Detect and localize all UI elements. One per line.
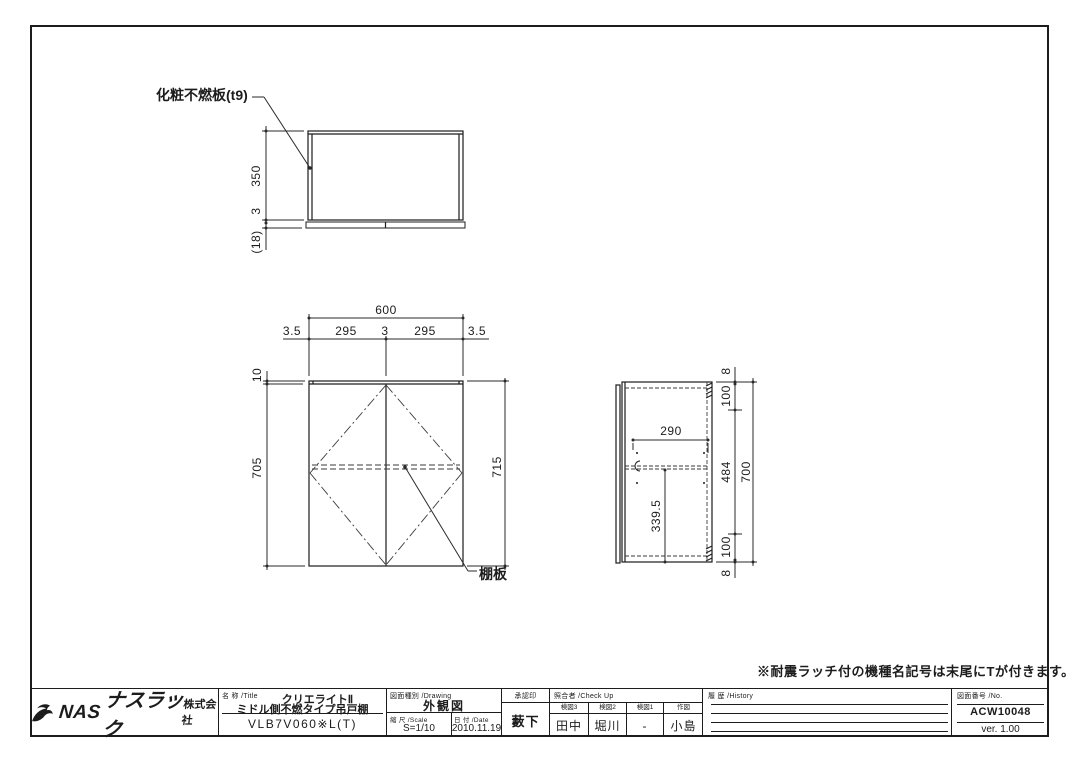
history-cell: 履 歴 /History	[702, 689, 951, 737]
approval-header: 承認印	[502, 691, 549, 701]
checkup-col-1-value: -	[627, 714, 663, 737]
product-name: ミドル側不燃タイプ吊戸棚	[219, 701, 386, 717]
name-cell: 名 称 /Title クリエライトⅡ ミドル側不燃タイプ吊戸棚 VLB7V060…	[218, 689, 386, 737]
model-number: VLB7V060※L(T)	[219, 717, 386, 731]
history-line-1	[711, 704, 948, 705]
name-divider	[222, 713, 383, 714]
logo-brand-text: ナスラック	[101, 684, 186, 742]
history-line-3	[711, 722, 948, 723]
front-view-drawing	[309, 381, 463, 566]
dim-side-bottom-offset: 100	[719, 536, 733, 558]
title-block: NAS ナスラック 株式会社 名 称 /Title クリエライトⅡ ミドル側不燃…	[30, 688, 1049, 737]
approval-cell: 承認印 藪下	[501, 689, 549, 737]
checkup-col-3-label: 検図3	[550, 702, 588, 714]
side-view-details	[635, 383, 712, 561]
history-line-2	[711, 713, 948, 714]
checkup-col-1-label: 検図1	[627, 702, 663, 714]
dim-front-door-left: 295	[335, 324, 357, 338]
checkup-cell: 照合者 /Check Up 検図3 田中 検図2 堀川 検図1 - 作図 小島	[549, 689, 702, 737]
checkup-header: 照合者 /Check Up	[554, 691, 614, 701]
dim-front-edge-left: 3.5	[283, 324, 301, 338]
dim-front-total-height: 715	[490, 456, 504, 478]
checkup-col-draft-value: 小島	[664, 714, 703, 737]
dim-front-top-band: 10	[250, 368, 264, 382]
drawing-cell: 図面種別 /Drawing 外観図 縮 尺 /Scale S=1/10 日 付 …	[386, 689, 501, 737]
checkup-col-2-value: 堀川	[589, 714, 626, 737]
number-cell: 図面番号 /No. ACW10048 ver. 1.00	[951, 689, 1049, 737]
approval-value: 藪下	[502, 711, 549, 730]
side-view-drawing	[616, 382, 712, 563]
dim-side-total-height: 700	[739, 461, 753, 483]
number-header: 図面番号 /No.	[957, 691, 1002, 701]
finish-panel-callout: 化粧不燃板(t9)	[156, 85, 248, 105]
logo-suffix-text: 株式会社	[181, 696, 220, 728]
drawing-number: ACW10048	[952, 706, 1049, 718]
checkup-col-2: 検図2 堀川	[588, 702, 626, 737]
top-view-drawing	[306, 131, 465, 228]
number-divider-2	[957, 722, 1044, 723]
nas-bird-logo-icon	[29, 703, 55, 723]
logo-cell: NAS ナスラック 株式会社	[30, 689, 218, 737]
dim-side-shelf-height: 339.5	[649, 500, 663, 533]
shelf-callout: 棚板	[479, 564, 507, 584]
checkup-col-draft-label: 作図	[664, 702, 703, 714]
checkup-col-1: 検図1 -	[626, 702, 663, 737]
seismic-latch-footnote: ※耐震ラッチ付の機種名記号は末尾にTが付きます。	[757, 661, 1075, 680]
checkup-col-2-label: 検図2	[589, 702, 626, 714]
history-line-4	[711, 731, 948, 732]
history-header: 履 歴 /History	[708, 691, 753, 701]
dim-side-top-offset: 100	[719, 385, 733, 407]
dim-front-door-right: 295	[414, 324, 436, 338]
dim-front-total-width: 600	[375, 303, 397, 317]
dim-front-edge-right: 3.5	[468, 324, 486, 338]
drawing-sheet: 化粧不燃板(t9) 350 3 (18) 600 3.5 295 3 295 3…	[0, 0, 1080, 764]
side-view-hidden-lines	[625, 382, 707, 562]
approval-divider	[502, 702, 549, 703]
checkup-col-draft: 作図 小島	[663, 702, 703, 737]
dim-side-mid-span: 484	[719, 461, 733, 483]
dim-top-view-door-thickness: (18)	[249, 230, 263, 253]
checkup-col-3-value: 田中	[550, 714, 588, 737]
checkup-col-3: 検図3 田中	[550, 702, 588, 737]
logo-nas-text: NAS	[58, 702, 102, 724]
drawing-version: ver. 1.00	[952, 724, 1049, 735]
front-view-shelf-leader	[403, 465, 477, 571]
dim-top-view-gap: 3	[249, 207, 263, 214]
number-divider-1	[957, 704, 1044, 705]
dim-top-view-depth: 350	[249, 165, 263, 187]
scale-value: S=1/10	[387, 723, 451, 734]
cad-line-geometry	[0, 0, 1080, 764]
dim-front-center-gap: 3	[381, 324, 388, 338]
checkup-columns: 検図3 田中 検図2 堀川 検図1 - 作図 小島	[550, 702, 702, 737]
drawing-divider	[387, 712, 501, 713]
company-logo: NAS ナスラック 株式会社	[27, 689, 220, 737]
date-value: 2010.11.19	[451, 723, 502, 734]
dim-side-top-edge: 8	[719, 367, 733, 374]
dim-side-shelf-depth: 290	[660, 424, 682, 438]
dim-front-body-height: 705	[250, 457, 264, 479]
dim-side-bottom-edge: 8	[719, 569, 733, 576]
